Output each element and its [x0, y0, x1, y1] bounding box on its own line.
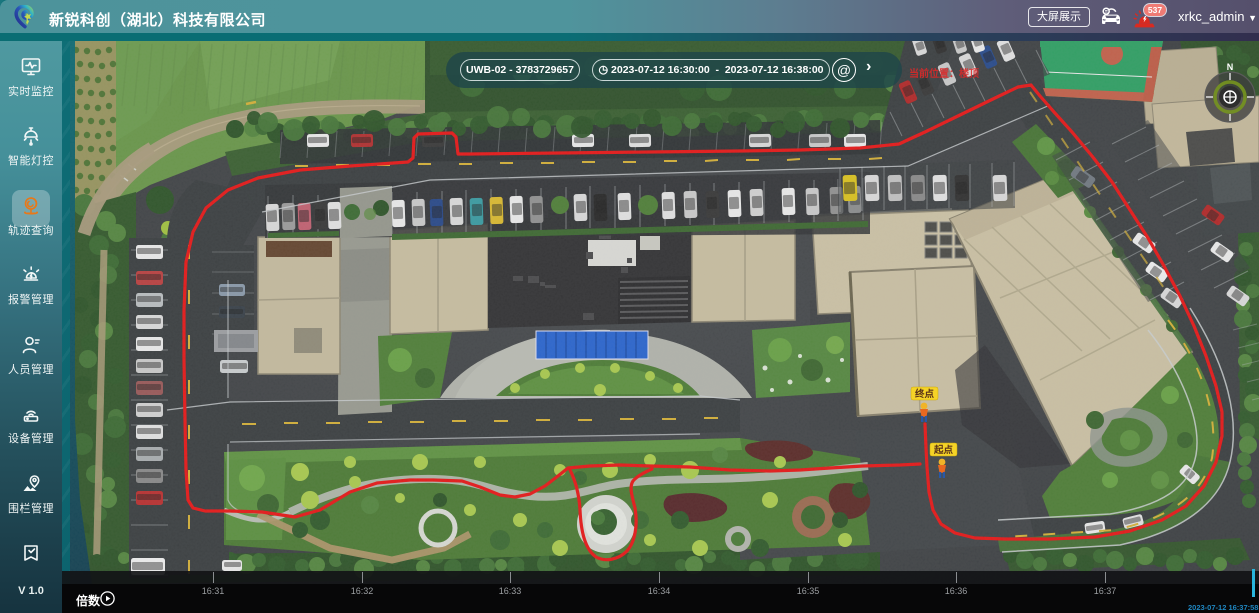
- svg-text:起点: 起点: [933, 444, 954, 456]
- svg-text:N: N: [1227, 62, 1234, 72]
- svg-text:终点: 终点: [914, 388, 935, 400]
